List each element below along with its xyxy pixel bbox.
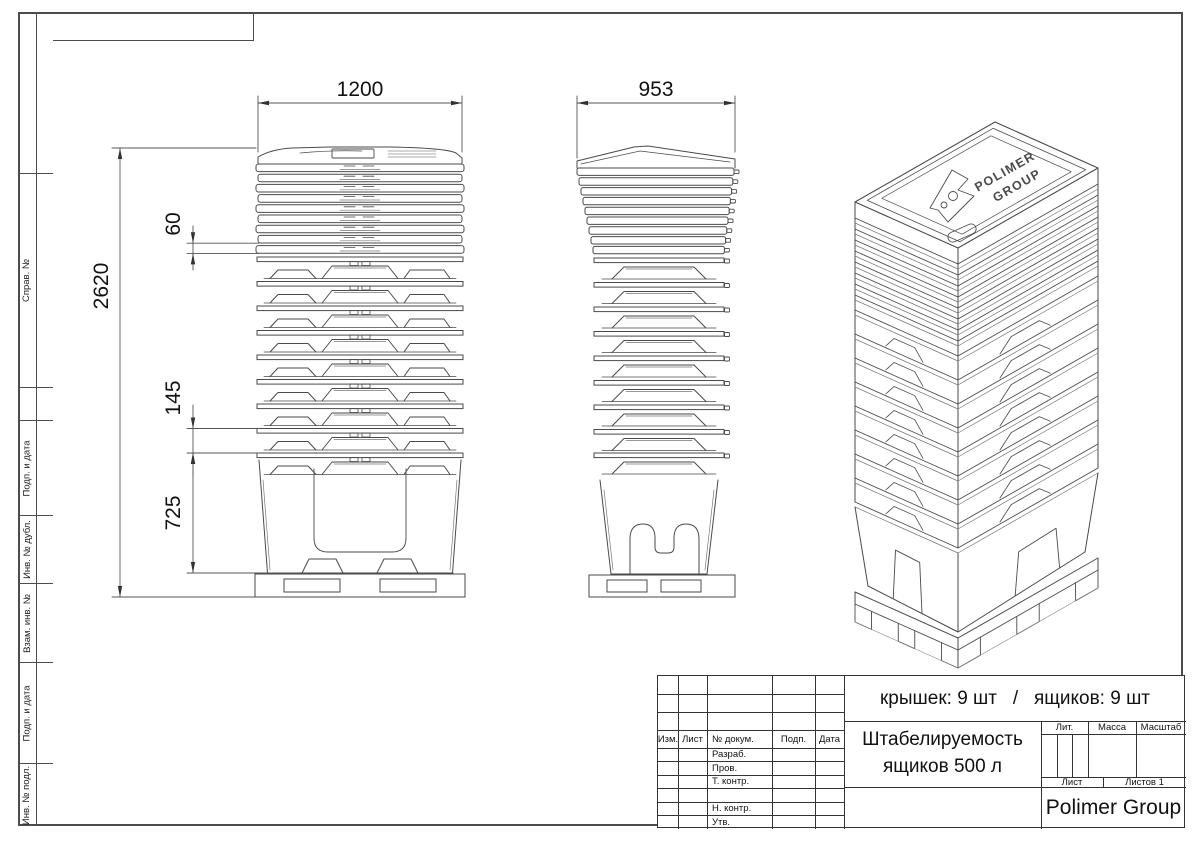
lit-label: Лит. [1041,721,1088,734]
title-block: Изм. Лист № докум. Подп. Дата Разраб. Пр… [657,675,1185,828]
sheet-label: Лист [1041,777,1103,787]
company-name: Polimer Group [1041,787,1186,829]
col-izm: Изм. [658,730,678,748]
strip-cell-podp2: Подп. и дата [18,662,53,763]
left-frame-strip: Справ. № Подп. и дата Инв. № дубл. Взам.… [18,12,53,826]
strip-cell-inv-podl: Инв. № подл. [18,763,53,826]
row-utv: Утв. [707,815,772,829]
strip-cell-inv-dubl: Инв. № дубл. [18,515,53,583]
drawing-sheet: POLIMER GROUP 1200 953 2620 60 145 725 С… [0,0,1200,845]
scale-label: Масштаб [1136,721,1186,734]
designation-cell [53,14,254,41]
sheets-label: Листов 1 [1103,777,1186,787]
strip-cell-perv [18,12,53,173]
document-title: Штабелируемость ящиков 500 л [844,721,1041,787]
row-razrab: Разраб. [707,748,772,761]
row-tkontr: Т. контр. [707,775,772,788]
col-dokum: № докум. [707,730,772,748]
quantity-summary: крышек: 9 шт / ящиков: 9 шт [844,676,1186,721]
strip-cell-podp1: Подп. и дата [18,420,53,515]
col-podp: Подп. [772,730,815,748]
row-blank [707,788,772,802]
mass-label: Масса [1088,721,1136,734]
strip-cell-sprav: Справ. № [18,173,53,388]
col-list: Лист [678,730,707,748]
row-prov: Пров. [707,761,772,775]
row-nkontr: Н. контр. [707,802,772,815]
col-data: Дата [815,730,844,748]
strip-cell-vzam: Взам. инв. № [18,583,53,662]
